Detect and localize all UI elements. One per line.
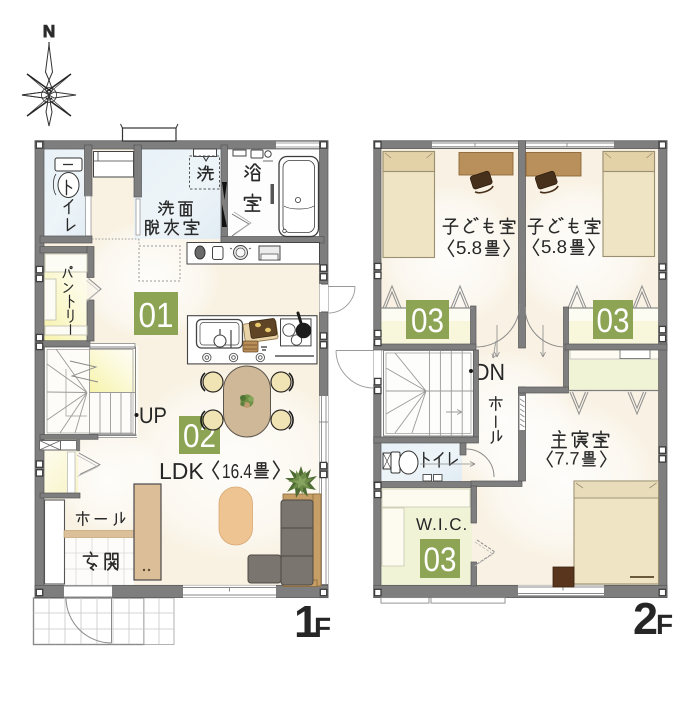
- svg-text:03: 03: [597, 302, 630, 340]
- svg-text:16.4: 16.4: [222, 461, 252, 483]
- svg-text:2: 2: [633, 593, 658, 644]
- svg-text:F: F: [314, 612, 331, 643]
- svg-text:03: 03: [411, 302, 444, 340]
- svg-text:7.7: 7.7: [555, 449, 580, 469]
- svg-text:F: F: [656, 609, 673, 640]
- svg-text:5.8: 5.8: [456, 237, 482, 258]
- svg-text:LDK: LDK: [159, 458, 204, 484]
- svg-text:W.I.C.: W.I.C.: [416, 515, 468, 534]
- svg-text:03: 03: [424, 541, 457, 579]
- svg-text:N: N: [43, 22, 55, 41]
- svg-text:5.8: 5.8: [541, 236, 567, 257]
- svg-text:01: 01: [139, 296, 174, 335]
- svg-text:UP: UP: [139, 403, 167, 428]
